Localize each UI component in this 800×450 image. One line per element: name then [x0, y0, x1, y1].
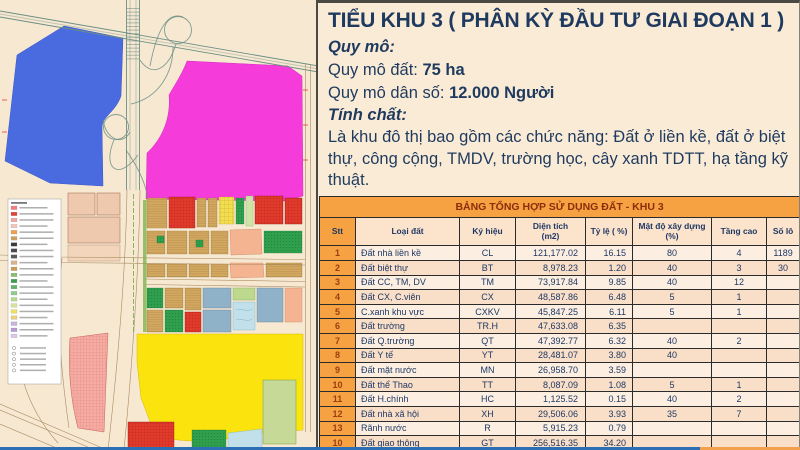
- legend-box: [8, 199, 61, 384]
- parcel-blocks: [68, 193, 120, 261]
- cell-mat_do: [633, 363, 712, 378]
- cell-loai_dat: Rãnh nước: [356, 421, 460, 436]
- table-row: 7Đất Q.trườngQT47,392.776.32402: [320, 333, 800, 348]
- cell-ty_le: 6.32: [586, 333, 633, 348]
- cell-so_lo: 30: [767, 260, 800, 275]
- cell-stt: 4: [320, 290, 356, 305]
- city-map-svg: Xã Yên Phú: [0, 0, 330, 450]
- cell-ky_hieu: YT: [460, 348, 516, 363]
- cell-loai_dat: Đất mặt nước: [356, 363, 460, 378]
- cell-ky_hieu: CX: [460, 290, 516, 305]
- cell-dien_tich: 48,587.86: [516, 290, 586, 305]
- col-stt: Stt: [320, 218, 356, 246]
- table-row: 12Đất nhà xã hộiXH29,506.063.93357: [320, 406, 800, 421]
- cell-ty_le: 0.79: [586, 421, 633, 436]
- cell-dien_tich: 47,392.77: [516, 333, 586, 348]
- cell-ky_hieu: BT: [460, 260, 516, 275]
- cell-so_lo: [767, 377, 800, 392]
- cell-stt: 9: [320, 363, 356, 378]
- cell-ty_le: 0.15: [586, 392, 633, 407]
- table-title: BẢNG TỔNG HỢP SỬ DỤNG ĐẤT - KHU 3: [320, 197, 800, 218]
- cell-ky_hieu: CL: [460, 246, 516, 261]
- cell-so_lo: [767, 319, 800, 334]
- cell-tang_cao: [712, 319, 767, 334]
- page-title: TIỂU KHU 3 ( PHÂN KỲ ĐẦU TƯ GIAI ĐOẠN 1 …: [318, 3, 799, 36]
- cell-loai_dat: Đất biệt thự: [356, 260, 460, 275]
- tinh-chat-heading: Tính chất:: [318, 104, 799, 127]
- slide: Xã Yên Phú TIỂU KHU 3 ( PHÂN KỲ ĐẦU TƯ G…: [0, 0, 800, 450]
- cell-loai_dat: C.xanh khu vực: [356, 304, 460, 319]
- col-mat-do: Mật độ xây dựng (%): [633, 218, 712, 246]
- cell-so_lo: [767, 363, 800, 378]
- cell-dien_tich: 29,506.06: [516, 406, 586, 421]
- cell-dien_tich: 8,087.09: [516, 377, 586, 392]
- cell-dien_tich: 121,177.02: [516, 246, 586, 261]
- col-so-lo: Số lô: [767, 218, 800, 246]
- cell-stt: 8: [320, 348, 356, 363]
- cell-ky_hieu: TR.H: [460, 319, 516, 334]
- cell-so_lo: [767, 421, 800, 436]
- cell-tang_cao: 2: [712, 392, 767, 407]
- cell-stt: 10: [320, 377, 356, 392]
- cell-stt: 11: [320, 392, 356, 407]
- quy-mo-dan-so-line: Quy mô dân số: 12.000 Người: [318, 82, 799, 105]
- land-use-map: Xã Yên Phú: [0, 0, 330, 450]
- cell-dien_tich: 1,125.52: [516, 392, 586, 407]
- cell-loai_dat: Đất Q.trường: [356, 333, 460, 348]
- cell-mat_do: 5: [633, 304, 712, 319]
- cell-ky_hieu: XH: [460, 406, 516, 421]
- cell-ty_le: 6.48: [586, 290, 633, 305]
- cell-dien_tich: 26,958.70: [516, 363, 586, 378]
- cell-dien_tich: 28,481.07: [516, 348, 586, 363]
- table-row: 9Đất mặt nướcMN26,958.703.59: [320, 363, 800, 378]
- table-row: 11Đất H.chínhHC1,125.520.15402: [320, 392, 800, 407]
- table-row: 5C.xanh khu vựcCXKV45,847.256.1151: [320, 304, 800, 319]
- cell-mat_do: 35: [633, 406, 712, 421]
- cell-mat_do: 5: [633, 290, 712, 305]
- cell-ty_le: 3.59: [586, 363, 633, 378]
- table-row: 1Đất nhà liền kềCL121,177.0216.158041189: [320, 246, 800, 261]
- cell-so_lo: [767, 333, 800, 348]
- cell-so_lo: [767, 406, 800, 421]
- cell-loai_dat: Đất nhà xã hội: [356, 406, 460, 421]
- cell-stt: 12: [320, 406, 356, 421]
- cell-ky_hieu: R: [460, 421, 516, 436]
- cell-stt: 13: [320, 421, 356, 436]
- table-row: 2Đất biệt thựBT8,978.231.2040330: [320, 260, 800, 275]
- quy-mo-dat-value: 75 ha: [422, 61, 464, 79]
- table-row: 13Rãnh nướcR5,915.230.79: [320, 421, 800, 436]
- cell-mat_do: [633, 319, 712, 334]
- cell-stt: 1: [320, 246, 356, 261]
- cell-dien_tich: 73,917.84: [516, 275, 586, 290]
- cell-ty_le: 3.93: [586, 406, 633, 421]
- cell-so_lo: [767, 392, 800, 407]
- cell-ty_le: 1.20: [586, 260, 633, 275]
- quy-mo-dan-so-value: 12.000 Người: [449, 84, 554, 102]
- cell-loai_dat: Đất CX, C.viên: [356, 290, 460, 305]
- cell-ty_le: 9.85: [586, 275, 633, 290]
- quy-mo-dat-line: Quy mô đất: 75 ha: [318, 59, 799, 82]
- quy-mo-heading: Quy mô:: [318, 36, 799, 59]
- cell-dien_tich: 45,847.25: [516, 304, 586, 319]
- table-row: 6Đất trườngTR.H47,633.086.35: [320, 319, 800, 334]
- cell-loai_dat: Đất thể Thao: [356, 377, 460, 392]
- cell-mat_do: 40: [633, 260, 712, 275]
- tinh-chat-text: Là khu đô thị bao gồm các chức năng: Đất…: [318, 127, 799, 193]
- cell-dien_tich: 5,915.23: [516, 421, 586, 436]
- cell-loai_dat: Đất H.chính: [356, 392, 460, 407]
- cell-so_lo: [767, 275, 800, 290]
- cell-stt: 7: [320, 333, 356, 348]
- cell-ky_hieu: QT: [460, 333, 516, 348]
- cell-tang_cao: [712, 363, 767, 378]
- cell-ty_le: 16.15: [586, 246, 633, 261]
- cell-tang_cao: 7: [712, 406, 767, 421]
- col-tang-cao: Tầng cao: [712, 218, 767, 246]
- table-row: 4Đất CX, C.viênCX48,587.866.4851: [320, 290, 800, 305]
- cell-mat_do: 80: [633, 246, 712, 261]
- cell-ty_le: 6.35: [586, 319, 633, 334]
- cell-stt: 3: [320, 275, 356, 290]
- cell-mat_do: 40: [633, 275, 712, 290]
- cell-dien_tich: 47,633.08: [516, 319, 586, 334]
- info-panel: TIỂU KHU 3 ( PHÂN KỲ ĐẦU TƯ GIAI ĐOẠN 1 …: [316, 0, 800, 450]
- cell-mat_do: 40: [633, 348, 712, 363]
- cell-ky_hieu: CXKV: [460, 304, 516, 319]
- cell-ky_hieu: HC: [460, 392, 516, 407]
- cell-tang_cao: 1: [712, 377, 767, 392]
- cell-ty_le: 1.08: [586, 377, 633, 392]
- green-strip-block: [263, 380, 296, 444]
- cell-mat_do: 40: [633, 392, 712, 407]
- cell-tang_cao: 3: [712, 260, 767, 275]
- cell-stt: 6: [320, 319, 356, 334]
- cell-ty_le: 6.11: [586, 304, 633, 319]
- cell-mat_do: 5: [633, 377, 712, 392]
- cell-tang_cao: [712, 421, 767, 436]
- cell-tang_cao: [712, 348, 767, 363]
- table-row: 8Đất Y tếYT28,481.073.8040: [320, 348, 800, 363]
- cell-ky_hieu: TM: [460, 275, 516, 290]
- table-row: 10Đất thể ThaoTT8,087.091.0851: [320, 377, 800, 392]
- cell-tang_cao: 4: [712, 246, 767, 261]
- land-use-table: BẢNG TỔNG HỢP SỬ DỤNG ĐẤT - KHU 3 Stt Lo…: [319, 196, 800, 450]
- cell-stt: 5: [320, 304, 356, 319]
- cell-tang_cao: 1: [712, 290, 767, 305]
- cell-loai_dat: Đất trường: [356, 319, 460, 334]
- cell-so_lo: [767, 304, 800, 319]
- cell-so_lo: 1189: [767, 246, 800, 261]
- cell-tang_cao: 2: [712, 333, 767, 348]
- cell-tang_cao: 12: [712, 275, 767, 290]
- cell-ky_hieu: MN: [460, 363, 516, 378]
- cell-so_lo: [767, 348, 800, 363]
- cell-tang_cao: 1: [712, 304, 767, 319]
- table-header-row: Stt Loại đất Ký hiệu Diện tích (m2) Tỷ l…: [320, 218, 800, 246]
- pond: [233, 302, 255, 330]
- cell-loai_dat: Đất CC, TM, DV: [356, 275, 460, 290]
- cell-loai_dat: Đất Y tế: [356, 348, 460, 363]
- cell-so_lo: [767, 290, 800, 305]
- table-row: 3Đất CC, TM, DVTM73,917.849.854012: [320, 275, 800, 290]
- col-ty-le: Tỷ lệ ( %): [586, 218, 633, 246]
- cell-dien_tich: 8,978.23: [516, 260, 586, 275]
- cell-ty_le: 3.80: [586, 348, 633, 363]
- cell-ky_hieu: TT: [460, 377, 516, 392]
- cell-mat_do: 40: [633, 333, 712, 348]
- col-ky-hieu: Ký hiệu: [460, 218, 516, 246]
- cell-stt: 2: [320, 260, 356, 275]
- cell-mat_do: [633, 421, 712, 436]
- col-loai-dat: Loại đất: [356, 218, 460, 246]
- cell-loai_dat: Đất nhà liền kề: [356, 246, 460, 261]
- col-dien-tich: Diện tích (m2): [516, 218, 586, 246]
